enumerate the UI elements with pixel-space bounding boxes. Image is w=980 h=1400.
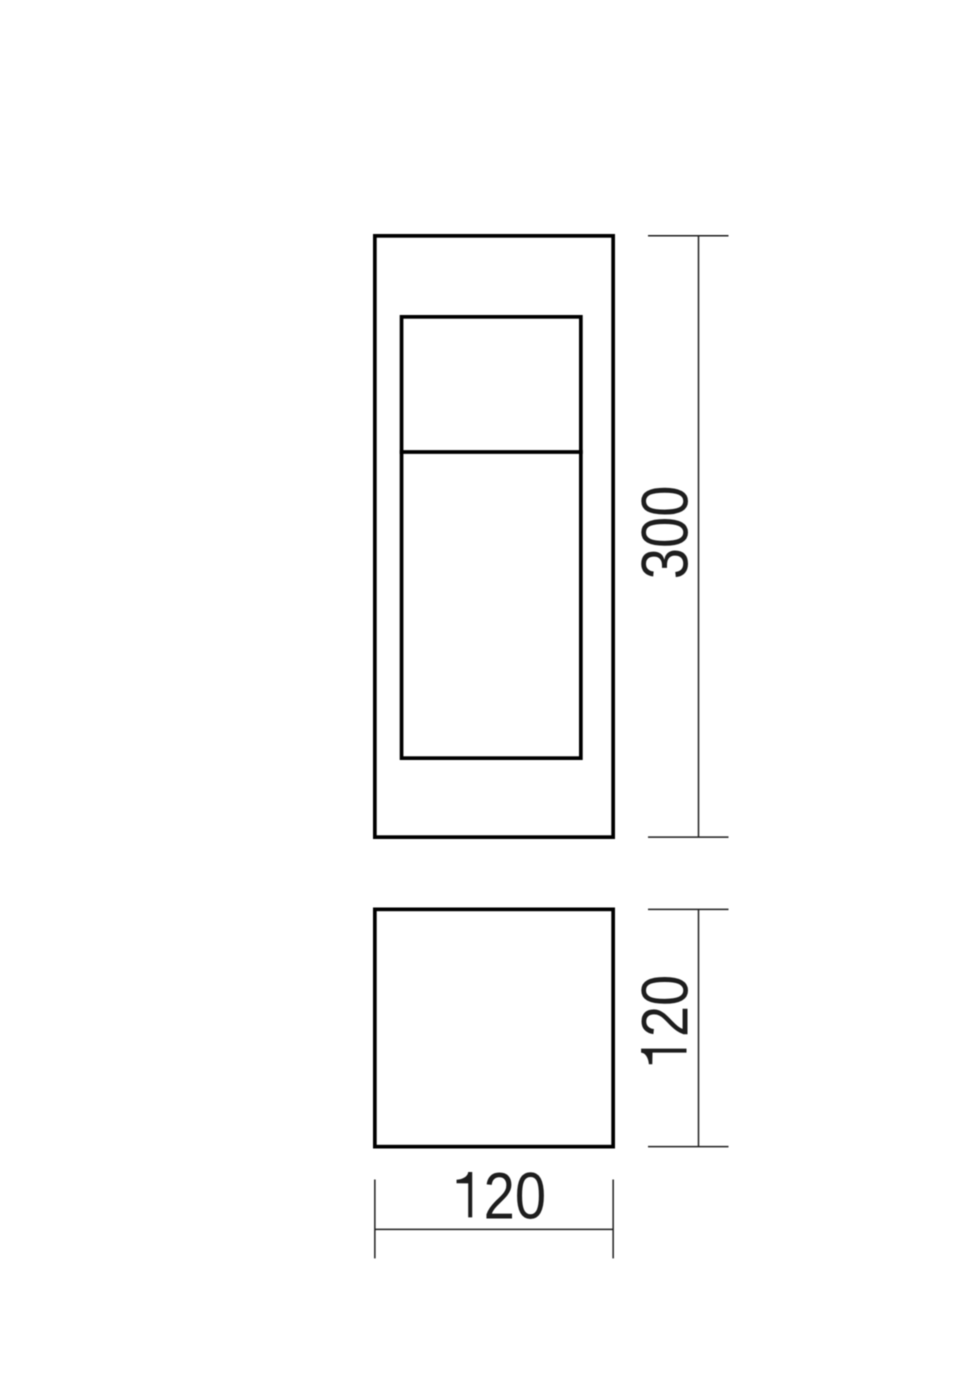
svg-text:20: 20	[484, 1159, 546, 1232]
svg-text:20: 20	[628, 975, 701, 1037]
svg-text:300: 300	[628, 486, 701, 580]
